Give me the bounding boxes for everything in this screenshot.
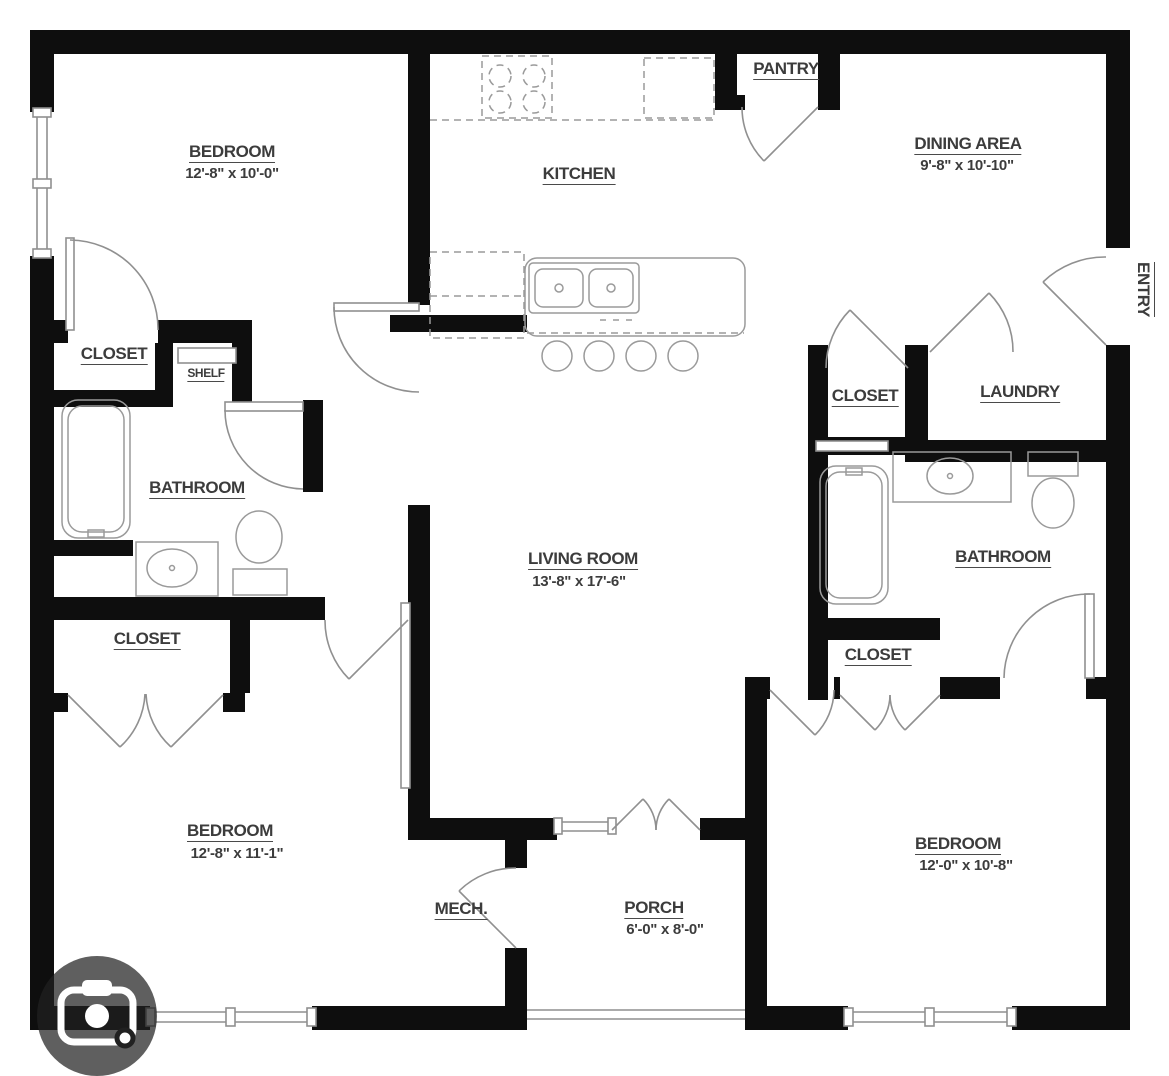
label-entry: ENTRY: [1134, 262, 1155, 317]
label-closet-top-left: CLOSET: [81, 345, 148, 365]
dims-bedroom3: 12'-0" x 10'-8": [919, 858, 1013, 874]
label-closet-lower-right: CLOSET: [845, 646, 912, 666]
dims-dining: 9'-8" x 10'-10": [920, 158, 1014, 174]
bathtub-left: [62, 400, 130, 538]
porch-open-edge: [527, 1010, 745, 1019]
floorplan-viewer: { "rooms": { "bedroom1": {"label": "BEDR…: [0, 0, 1169, 1074]
label-dining: DINING AREA: [914, 135, 1021, 155]
label-closet-lower-left: CLOSET: [114, 630, 181, 650]
toilet-left: [233, 569, 287, 595]
camera-search-button[interactable]: [37, 956, 157, 1076]
label-bedroom2: BEDROOM: [187, 822, 273, 842]
label-bathroom-right: BATHROOM: [955, 548, 1051, 568]
kitchen-sink: [529, 263, 639, 313]
label-kitchen: KITCHEN: [543, 165, 616, 185]
label-mech: MECH.: [435, 900, 488, 920]
kitchen-counter-dashed: [430, 56, 744, 338]
label-living-room: LIVING ROOM: [528, 550, 638, 570]
dims-bedroom2: 12'-8" x 11'-1": [191, 846, 284, 862]
label-closet-upper-right: CLOSET: [832, 387, 899, 407]
camera-icon: [37, 956, 157, 1076]
label-laundry: LAUNDRY: [980, 383, 1060, 403]
floorplan-image: BEDROOM 12'-8" x 10'-0" KITCHEN PANTRY D…: [0, 0, 1169, 1074]
label-shelf: SHELF: [187, 367, 224, 382]
bar-stools: [542, 341, 698, 371]
windows: [30, 108, 1016, 1030]
label-bathroom-left: BATHROOM: [149, 479, 245, 499]
dims-porch: 6'-0" x 8'-0": [626, 922, 704, 938]
bathtub-right: [820, 466, 888, 604]
label-pantry: PANTRY: [753, 60, 819, 80]
dims-living-room: 13'-8" x 17'-6": [532, 574, 626, 590]
dims-bedroom1: 12'-8" x 10'-0": [185, 166, 279, 182]
label-porch: PORCH: [624, 899, 683, 919]
label-bedroom3: BEDROOM: [915, 835, 1001, 855]
bathroom-right-fixtures: [820, 452, 1078, 604]
label-bedroom1: BEDROOM: [189, 143, 275, 163]
